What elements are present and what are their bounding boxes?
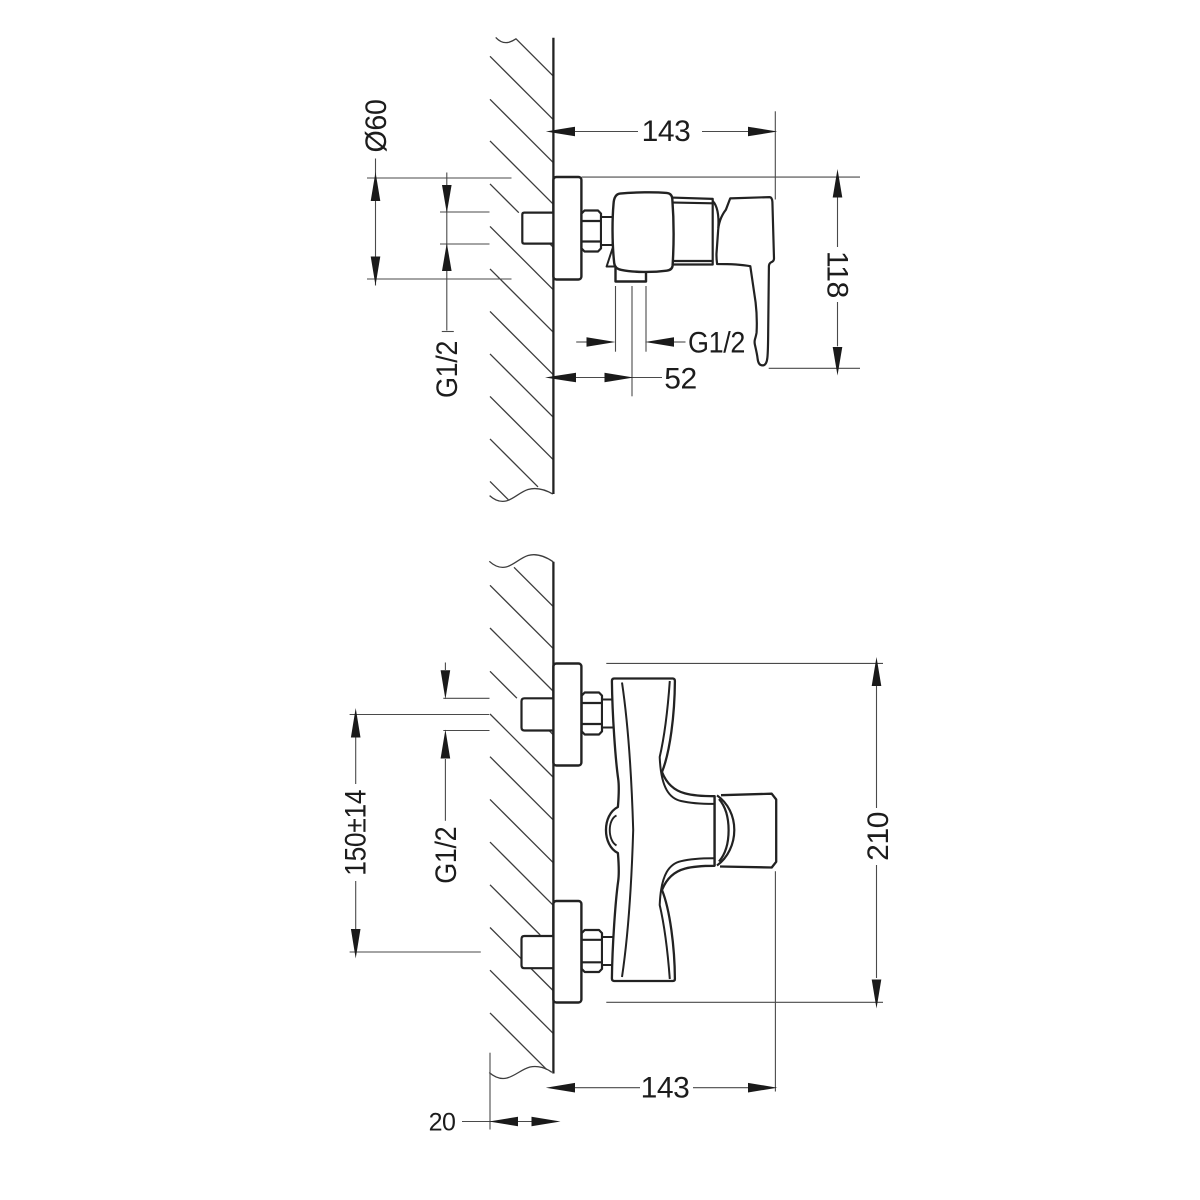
svg-text:Ø60: Ø60 bbox=[360, 100, 393, 153]
svg-text:52: 52 bbox=[664, 363, 697, 396]
svg-text:150±14: 150±14 bbox=[340, 790, 373, 876]
svg-text:143: 143 bbox=[641, 1072, 690, 1105]
svg-text:143: 143 bbox=[642, 115, 691, 148]
svg-text:G1/2: G1/2 bbox=[431, 341, 464, 398]
svg-text:G1/2: G1/2 bbox=[688, 327, 745, 360]
svg-text:118: 118 bbox=[821, 251, 854, 298]
svg-text:20: 20 bbox=[429, 1109, 456, 1137]
svg-text:210: 210 bbox=[862, 812, 895, 861]
svg-text:G1/2: G1/2 bbox=[430, 827, 463, 884]
